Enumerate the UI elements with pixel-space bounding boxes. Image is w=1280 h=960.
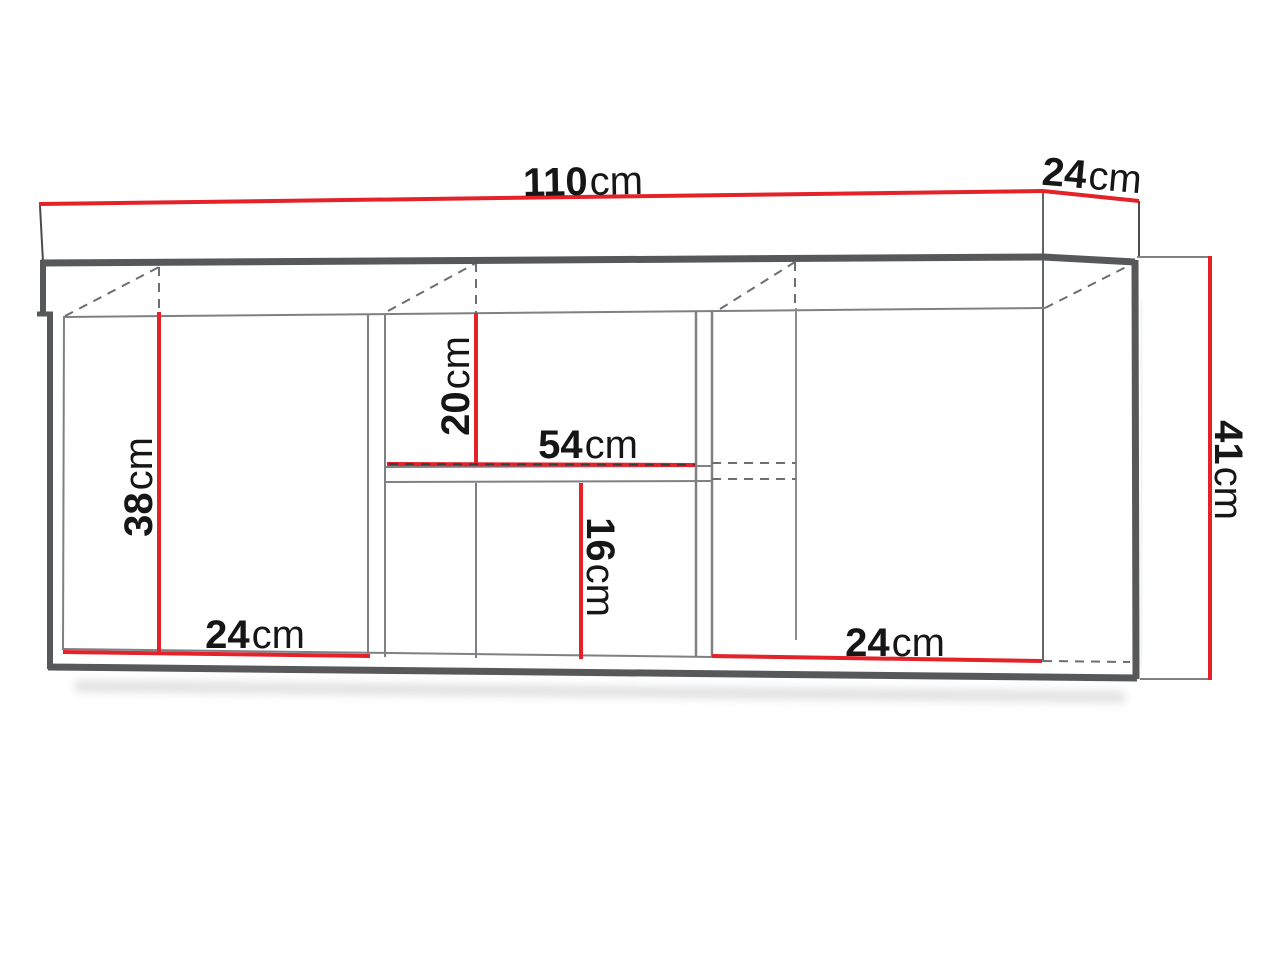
depth-dashed-diagonal-4 [1045,264,1132,308]
cabinet-drop-shadow-right [1141,300,1142,668]
top-width-dimension-line [39,191,1043,204]
cabinet-bottom-edge [48,667,1137,678]
bottom-hidden-dashed [1043,661,1130,662]
interior-top-edge [65,308,1045,317]
cabinet-drop-shadow-bottom [75,686,1125,697]
bottom-right-width-dimension-line [712,656,1042,661]
cabinet-right-edge [1135,260,1136,679]
interior-left-wall [63,316,64,650]
top-depth-dimension-line [1043,191,1139,201]
cabinet-line-drawing [0,0,1280,960]
depth-dashed-diagonal-1 [65,267,159,316]
furniture-dimension-diagram: 110cm 24cm 41cm 38cm 20cm 54cm 16cm 24cm… [0,0,1280,960]
cabinet-top-front-edge-right [1043,257,1135,262]
top-panel-left-edge [40,206,43,262]
shelf-bottom-edge [385,481,712,482]
depth-dashed-diagonal-2 [388,263,476,311]
depth-dashed-diagonal-3 [720,262,795,309]
cabinet-top-front-edge [41,257,1043,263]
